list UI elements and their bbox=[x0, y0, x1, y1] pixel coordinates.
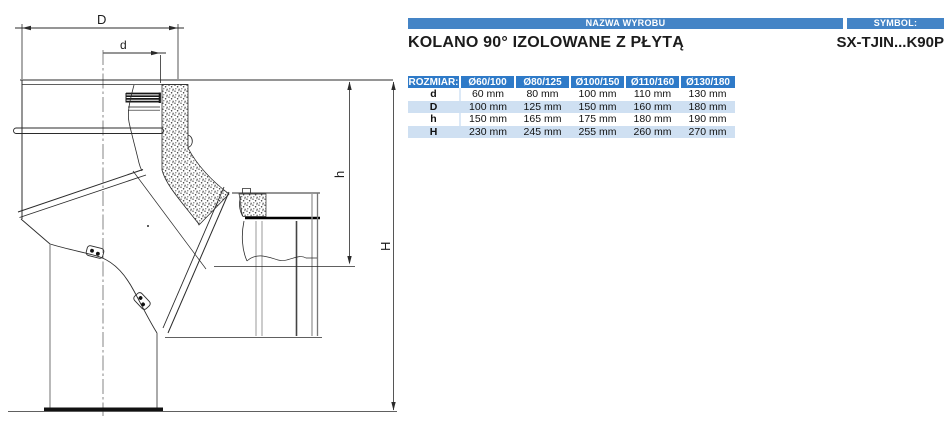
elbow-body bbox=[21, 219, 157, 410]
table-cell: 175 mm bbox=[570, 113, 625, 126]
table-row-D: D 100 mm 125 mm 150 mm 160 mm 180 mm bbox=[408, 101, 735, 114]
table-cell: 165 mm bbox=[515, 113, 570, 126]
column-header-size-2: Ø80/125 bbox=[515, 76, 570, 88]
dim-label-H: H bbox=[378, 242, 393, 251]
table-cell: 160 mm bbox=[625, 101, 680, 114]
row-label: d bbox=[408, 88, 460, 101]
table-row-h: h 150 mm 165 mm 175 mm 180 mm 190 mm bbox=[408, 113, 735, 126]
table-row-d: d 60 mm 80 mm 100 mm 110 mm 130 mm bbox=[408, 88, 735, 101]
table-cell: 100 mm bbox=[460, 101, 515, 114]
column-header-size-4: Ø110/160 bbox=[625, 76, 680, 88]
insulation-section bbox=[162, 85, 229, 226]
table-cell: 80 mm bbox=[515, 88, 570, 101]
datasheet-page: D d h H NAZWA WYROBU SYMBOL: KOLANO 90° … bbox=[0, 0, 946, 427]
symbol-header-bar: SYMBOL: bbox=[847, 18, 944, 29]
table-cell: 190 mm bbox=[680, 113, 735, 126]
column-header-size-5: Ø130/180 bbox=[680, 76, 735, 88]
dimension-table: ROZMIAR: Ø60/100 Ø80/125 Ø100/150 Ø110/1… bbox=[408, 76, 735, 138]
rivet-tab bbox=[86, 245, 105, 259]
table-cell: 130 mm bbox=[680, 88, 735, 101]
table-cell: 150 mm bbox=[570, 101, 625, 114]
technical-drawing: D d h H bbox=[0, 0, 410, 427]
dim-label-h: h bbox=[332, 171, 347, 178]
dim-label-D: D bbox=[97, 12, 106, 27]
table-cell: 260 mm bbox=[625, 126, 680, 139]
table-cell: 150 mm bbox=[460, 113, 515, 126]
base-plate bbox=[8, 408, 397, 412]
product-name-header-bar: NAZWA WYROBU bbox=[408, 18, 843, 29]
dimension-D bbox=[15, 24, 184, 79]
insulation-section-outlet bbox=[239, 194, 266, 217]
table-cell: 180 mm bbox=[680, 101, 735, 114]
column-header-rozmiar: ROZMIAR: bbox=[408, 76, 460, 88]
spec-panel: NAZWA WYROBU SYMBOL: KOLANO 90° IZOLOWAN… bbox=[405, 0, 946, 427]
row-label: D bbox=[408, 101, 460, 114]
table-header-row: ROZMIAR: Ø60/100 Ø80/125 Ø100/150 Ø110/1… bbox=[408, 76, 735, 88]
table-cell: 270 mm bbox=[680, 126, 735, 139]
table-cell: 125 mm bbox=[515, 101, 570, 114]
product-name: KOLANO 90° IZOLOWANE Z PŁYTĄ bbox=[408, 34, 684, 52]
column-header-size-3: Ø100/150 bbox=[570, 76, 625, 88]
table-cell: 60 mm bbox=[460, 88, 515, 101]
row-label: H bbox=[408, 126, 460, 139]
table-row-H: H 230 mm 245 mm 255 mm 260 mm 270 mm bbox=[408, 126, 735, 139]
table-cell: 110 mm bbox=[625, 88, 680, 101]
table-cell: 245 mm bbox=[515, 126, 570, 139]
column-header-size-1: Ø60/100 bbox=[460, 76, 515, 88]
table-cell: 180 mm bbox=[625, 113, 680, 126]
title-row: KOLANO 90° IZOLOWANE Z PŁYTĄ SX-TJIN...K… bbox=[408, 34, 944, 52]
table-cell: 255 mm bbox=[570, 126, 625, 139]
row-label: h bbox=[408, 113, 460, 126]
table-cell: 230 mm bbox=[460, 126, 515, 139]
table-cell: 100 mm bbox=[570, 88, 625, 101]
product-symbol: SX-TJIN...K90P bbox=[836, 34, 944, 51]
header-bars: NAZWA WYROBU SYMBOL: bbox=[408, 18, 944, 29]
dim-label-d: d bbox=[120, 38, 127, 52]
dimension-d bbox=[103, 51, 166, 83]
